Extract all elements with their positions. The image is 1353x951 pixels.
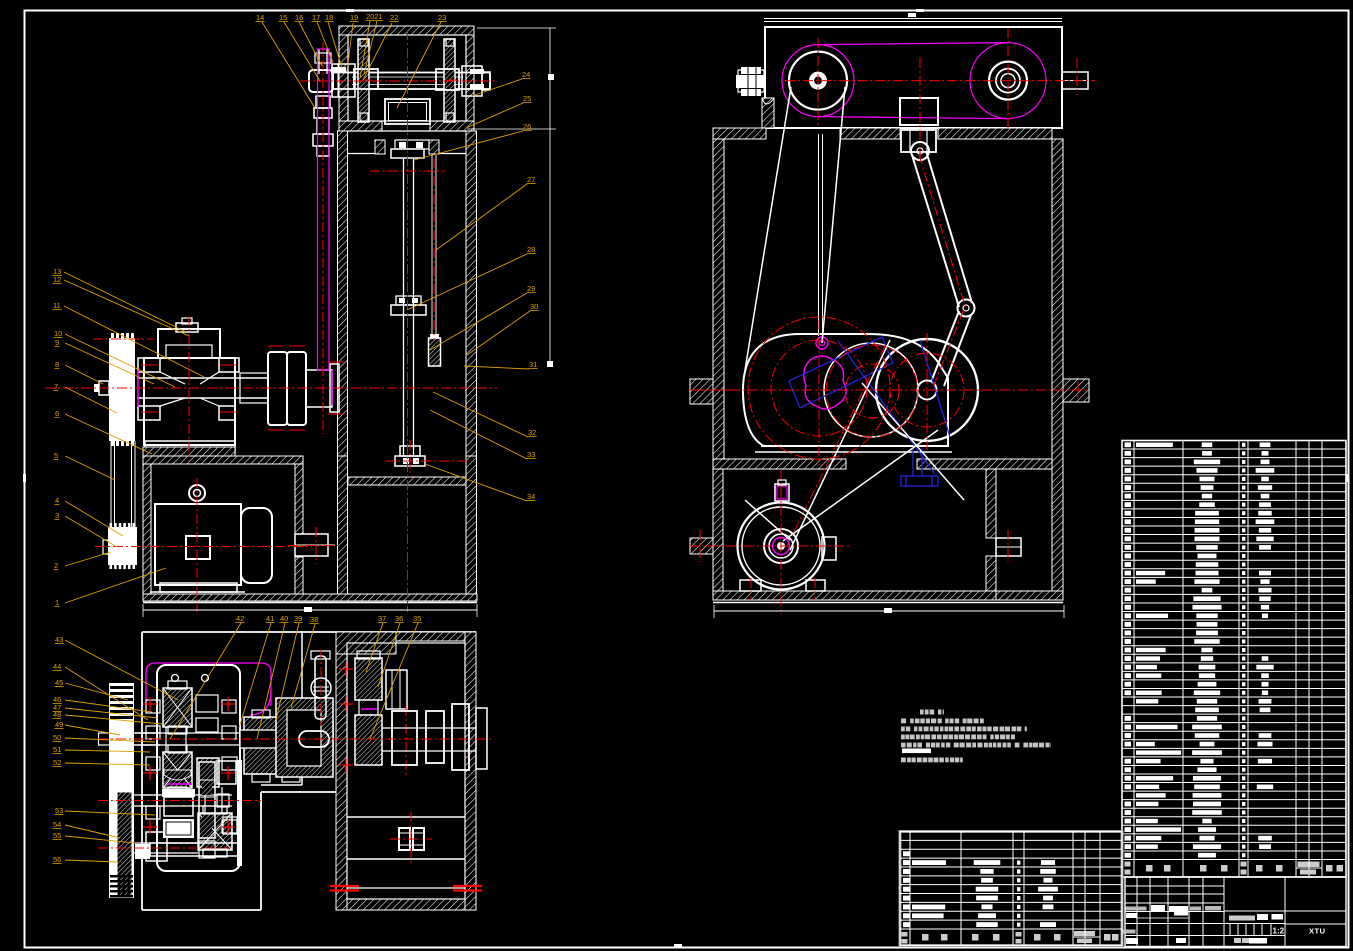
svg-text:26: 26	[523, 122, 531, 131]
svg-text:2: 2	[54, 561, 58, 570]
svg-text:30: 30	[530, 302, 538, 311]
svg-text:XTU: XTU	[1309, 927, 1326, 936]
svg-text:45: 45	[55, 678, 63, 687]
svg-text:34: 34	[527, 492, 535, 501]
svg-text:18: 18	[325, 13, 333, 22]
svg-text:24: 24	[522, 70, 530, 79]
svg-text:36: 36	[395, 614, 403, 623]
svg-text:25: 25	[523, 94, 531, 103]
svg-text:54: 54	[53, 820, 61, 829]
svg-text:7: 7	[54, 382, 58, 391]
svg-text:31: 31	[529, 360, 537, 369]
svg-text:33: 33	[527, 450, 535, 459]
svg-text:15: 15	[279, 13, 287, 22]
svg-text:43: 43	[55, 635, 63, 644]
svg-text:52: 52	[53, 758, 61, 767]
svg-text:39: 39	[294, 614, 302, 623]
svg-text:4: 4	[55, 496, 59, 505]
svg-text:23: 23	[438, 13, 446, 22]
svg-text:53: 53	[55, 806, 63, 815]
svg-text:9: 9	[55, 338, 59, 347]
svg-text:51: 51	[53, 745, 61, 754]
svg-text:17: 17	[312, 13, 320, 22]
svg-text:12: 12	[53, 275, 61, 284]
svg-text:55: 55	[53, 831, 61, 840]
svg-text:19: 19	[350, 13, 358, 22]
svg-text:3: 3	[55, 511, 59, 520]
svg-text:14: 14	[256, 13, 264, 22]
svg-text:49: 49	[55, 720, 63, 729]
svg-text:38: 38	[310, 615, 318, 624]
svg-text:44: 44	[53, 662, 61, 671]
svg-text:35: 35	[413, 614, 421, 623]
svg-text:37: 37	[378, 614, 386, 623]
svg-text:56: 56	[53, 855, 61, 864]
svg-text:8: 8	[55, 360, 59, 369]
svg-text:32: 32	[528, 428, 536, 437]
svg-text:1: 1	[55, 598, 59, 607]
svg-text:22: 22	[390, 13, 398, 22]
svg-text:48: 48	[53, 710, 61, 719]
svg-text:16: 16	[295, 13, 303, 22]
svg-text:5: 5	[54, 451, 58, 460]
svg-text:29: 29	[527, 284, 535, 293]
svg-text:11: 11	[53, 301, 61, 310]
svg-text:27: 27	[527, 175, 535, 184]
svg-text:10: 10	[54, 329, 62, 338]
svg-text:41: 41	[266, 614, 274, 623]
svg-text:6: 6	[55, 409, 59, 418]
svg-text:28: 28	[527, 245, 535, 254]
svg-text:1:2: 1:2	[1273, 927, 1285, 936]
svg-text:2021: 2021	[366, 12, 383, 21]
svg-text:50: 50	[53, 733, 61, 742]
svg-text:42: 42	[236, 614, 244, 623]
svg-text:40: 40	[280, 614, 288, 623]
